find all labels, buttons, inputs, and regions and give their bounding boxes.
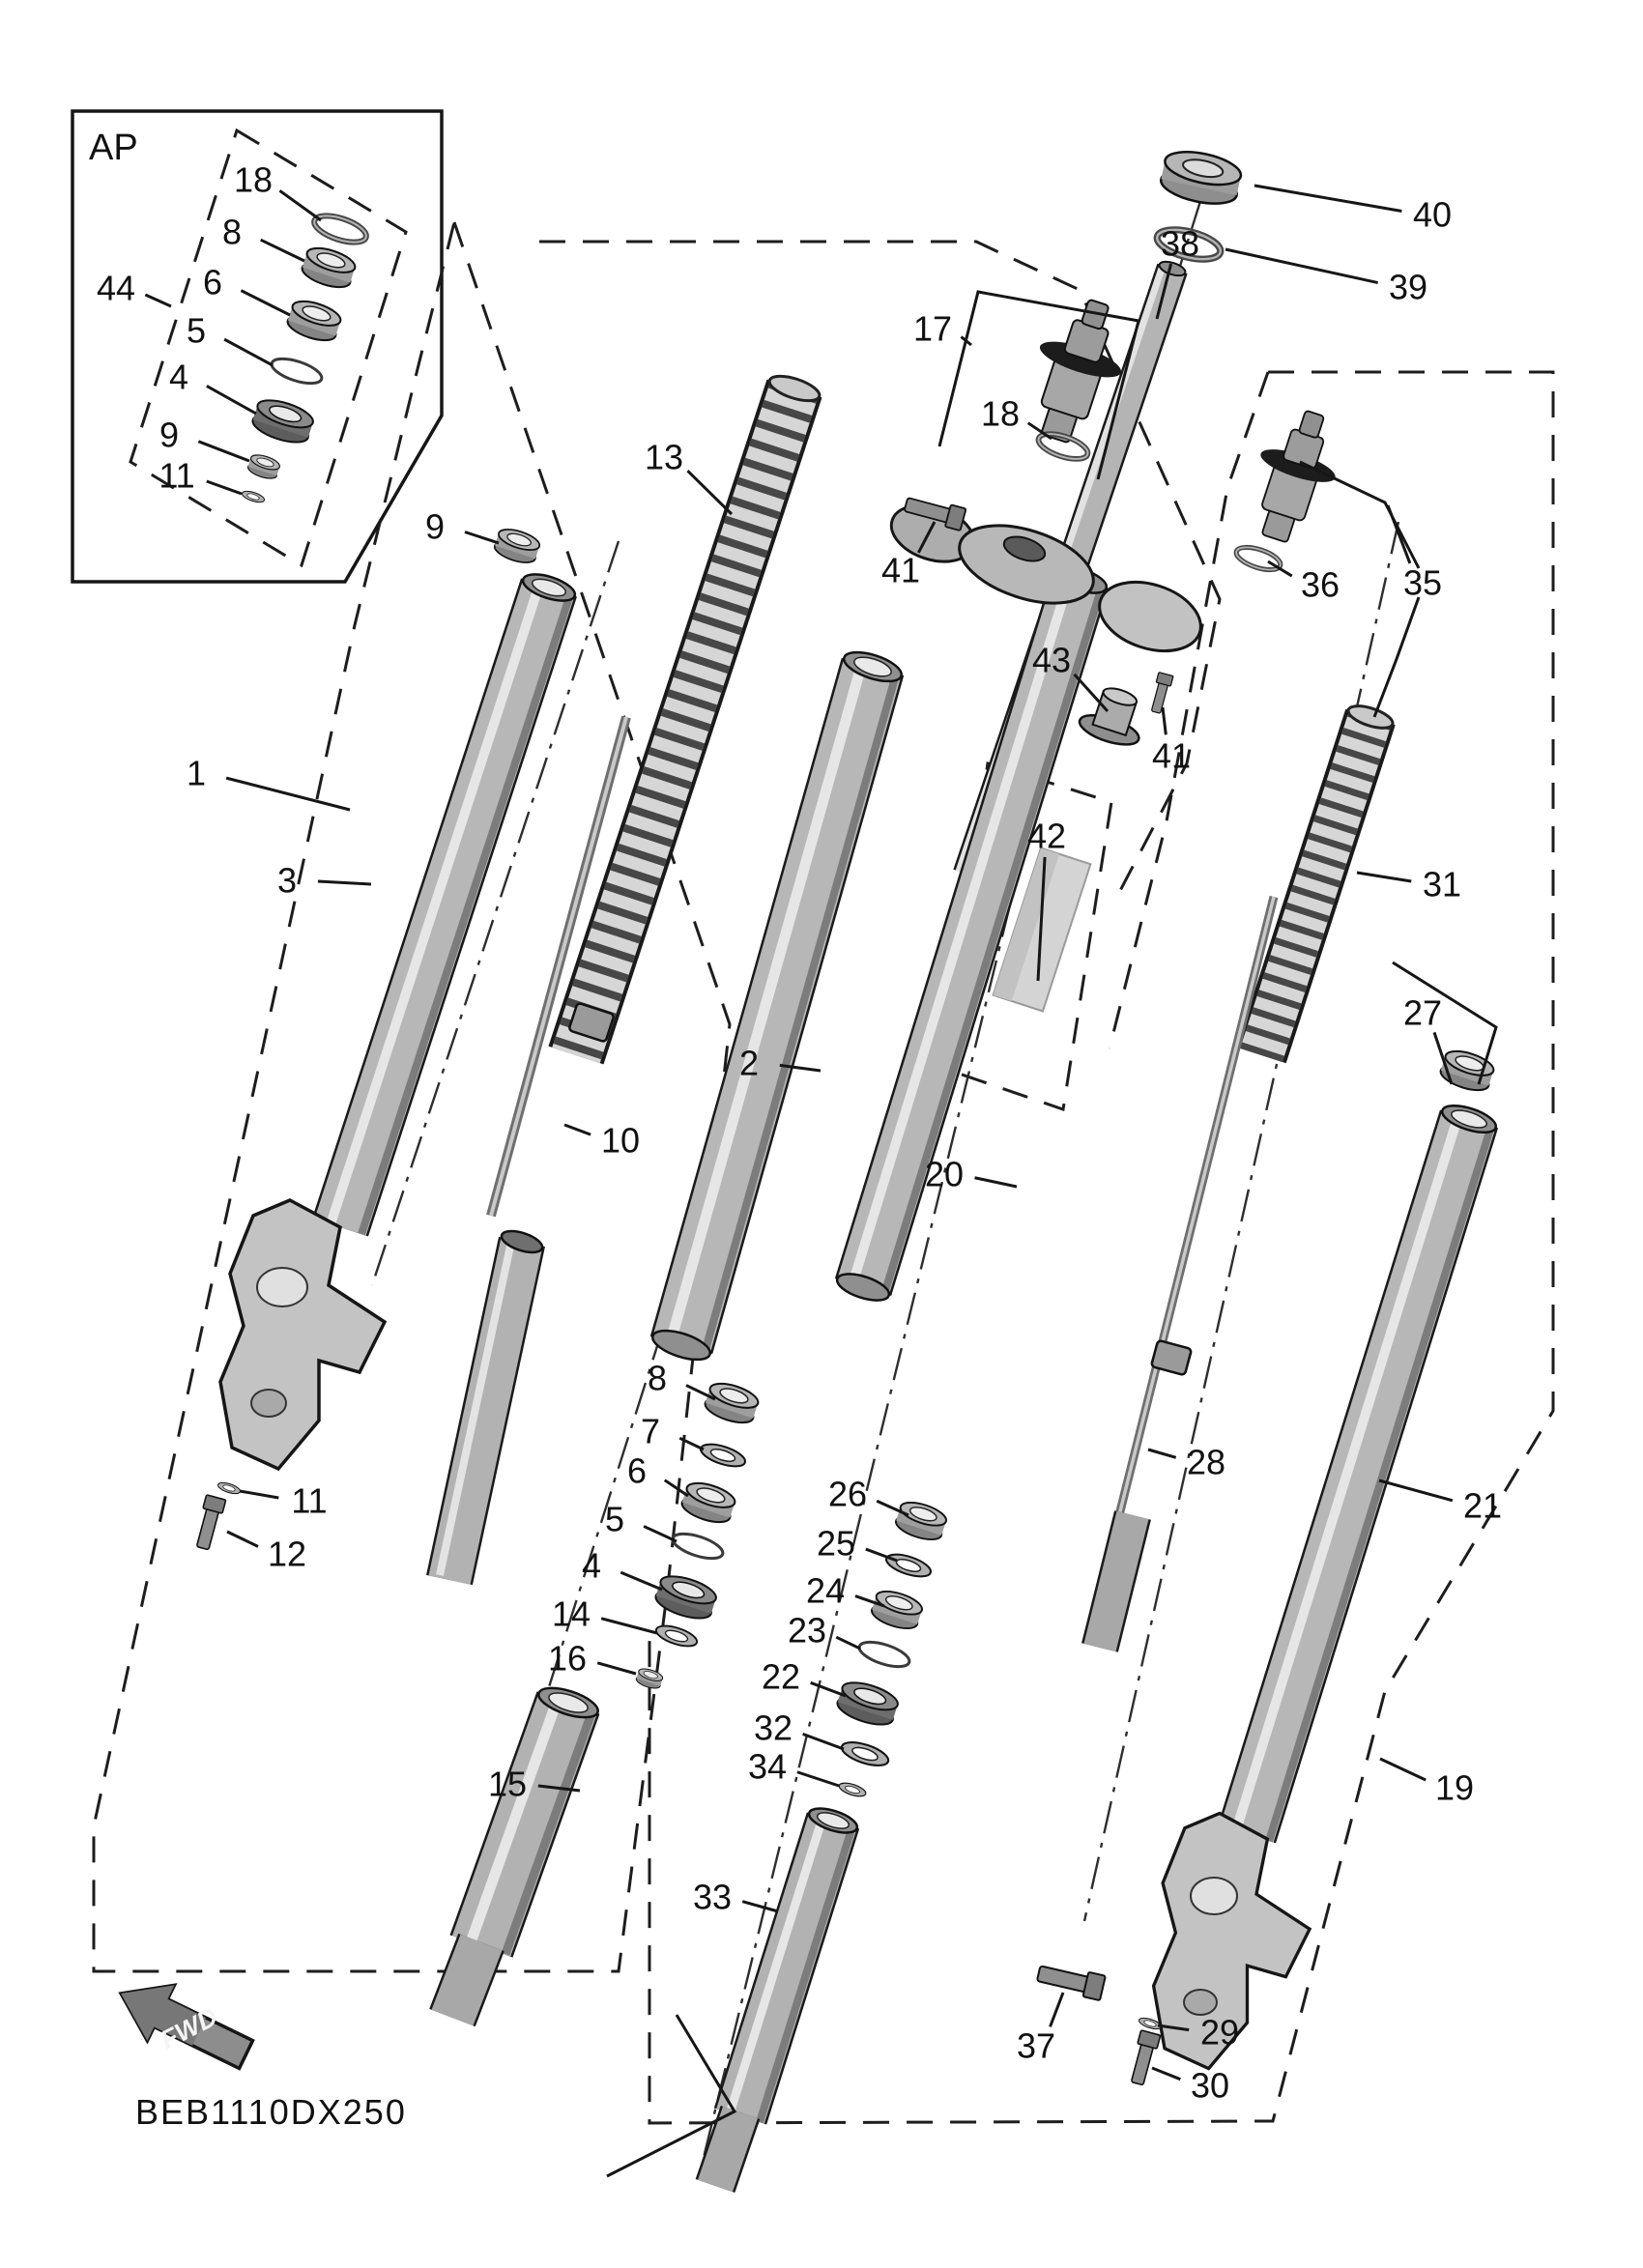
leader-13: [687, 471, 732, 514]
callout-39: 39: [1389, 268, 1427, 307]
ap-seal-4: [249, 395, 316, 448]
leader-4: [207, 386, 256, 414]
right-outer-tube-21: [1236, 1101, 1499, 1841]
callout-13: 13: [645, 438, 683, 477]
leader-10: [564, 1125, 591, 1134]
fork-spring-31: [1261, 702, 1396, 1055]
callout-17: 17: [913, 309, 952, 349]
callout-21: 21: [1463, 1486, 1502, 1526]
damper-rod-28: [1100, 897, 1274, 1648]
ap-washer-11: [241, 489, 266, 504]
callout-20: 20: [925, 1155, 964, 1194]
leader-4: [620, 1572, 662, 1590]
callout-23: 23: [788, 1611, 826, 1651]
leader-23: [836, 1637, 860, 1649]
fwd-arrow: FWD: [107, 1966, 259, 2082]
leader-8: [261, 240, 304, 261]
leader-6: [241, 291, 290, 315]
callout-42: 42: [1027, 817, 1066, 856]
callout-44: 44: [97, 269, 135, 308]
ap-box-title: AP: [89, 128, 138, 168]
axle-pinch-bolt-37: [1036, 1961, 1106, 2000]
callout-2: 2: [739, 1044, 759, 1083]
callout-24: 24: [806, 1571, 845, 1611]
callout-27: 27: [1403, 993, 1442, 1033]
callout-14: 14: [552, 1594, 591, 1634]
leader-11: [207, 481, 242, 494]
leader-33: [742, 1902, 778, 1911]
leader-30: [1152, 2068, 1180, 2080]
leader-34: [797, 1772, 839, 1786]
callout-11: 11: [291, 1481, 327, 1521]
leader-40: [1254, 186, 1401, 211]
callout-29: 29: [1200, 2013, 1239, 2053]
leader-12: [227, 1532, 258, 1546]
stem-cap-43: [1077, 681, 1152, 751]
spacer-9: [492, 526, 541, 567]
callout-10: 10: [601, 1121, 640, 1161]
callout-26: 26: [828, 1475, 867, 1514]
callout-8: 8: [222, 213, 242, 252]
leader-9: [198, 442, 249, 461]
callout-5: 5: [187, 311, 206, 351]
leader-5: [224, 339, 273, 365]
callout-28: 28: [1187, 1443, 1225, 1482]
leader-3: [318, 881, 371, 884]
drain-bolt-30: [1128, 2030, 1161, 2086]
callout-33: 33: [693, 1878, 732, 1917]
ap-oring-18: [311, 211, 369, 247]
leader-35: [1388, 505, 1410, 563]
leader-18: [279, 190, 321, 220]
leader-32: [803, 1734, 844, 1749]
callout-18: 18: [981, 394, 1020, 434]
ap-clip-5: [269, 354, 325, 388]
pinch-bolt-41-lower: [1148, 673, 1173, 714]
washer-11: [216, 1480, 242, 1496]
callout-9: 9: [159, 416, 179, 455]
callout-34: 34: [748, 1747, 787, 1787]
leader-37: [1051, 1993, 1063, 2026]
callout-18: 18: [234, 160, 273, 200]
callout-43: 43: [1032, 641, 1071, 680]
callout-9: 9: [425, 507, 445, 547]
cap-35-bracket-2: [1374, 597, 1419, 717]
callout-19: 19: [1435, 1768, 1474, 1808]
callout-41: 41: [1152, 736, 1191, 776]
callout-37: 37: [1017, 2026, 1055, 2066]
callout-4: 4: [169, 358, 188, 397]
ap-spacer-9: [246, 452, 281, 481]
leader-31: [1357, 873, 1411, 881]
ap-bushing-6: [285, 297, 344, 345]
damper-tube-15: [452, 1682, 601, 2018]
leader-28: [1148, 1450, 1176, 1457]
callout-32: 32: [754, 1708, 793, 1748]
leader-11: [240, 1491, 278, 1498]
callout-41: 41: [881, 551, 920, 590]
parts-diagram-page: FWD AP BEB1110DX250 18864454911913131024…: [0, 0, 1643, 2268]
leader-19: [1380, 1759, 1426, 1780]
callout-4: 4: [582, 1546, 601, 1586]
callout-1: 1: [187, 754, 206, 793]
cap-oring-36: [1233, 543, 1283, 574]
callout-31: 31: [1423, 865, 1461, 904]
callout-15: 15: [488, 1765, 527, 1804]
fork-cap-35: [1237, 401, 1352, 551]
callout-5: 5: [605, 1500, 624, 1539]
leader-39: [1225, 249, 1378, 283]
leader-41: [1163, 707, 1166, 734]
callout-6: 6: [203, 263, 222, 302]
callout-8: 8: [648, 1359, 667, 1398]
ap-bushing-8: [300, 244, 359, 292]
callout-35: 35: [1403, 563, 1442, 603]
drain-bolt-12: [193, 1495, 226, 1551]
left-axle-bracket: [220, 1200, 385, 1469]
callout-40: 40: [1413, 195, 1452, 235]
callout-38: 38: [1161, 224, 1199, 264]
leader-44: [145, 295, 171, 306]
leader-5: [644, 1526, 677, 1541]
leader-1: [226, 778, 350, 810]
leader-6: [665, 1480, 688, 1496]
left-outer-tube-3: [331, 569, 578, 1234]
callout-11: 11: [159, 456, 194, 496]
leader-14: [601, 1619, 657, 1633]
callout-7: 7: [641, 1412, 660, 1451]
exploded-diagram-canvas: FWD AP BEB1110DX250 18864454911913131024…: [0, 0, 1643, 2268]
callout-12: 12: [268, 1535, 306, 1574]
part-code: BEB1110DX250: [135, 2092, 407, 2132]
callout-6: 6: [627, 1451, 647, 1491]
callout-16: 16: [548, 1639, 587, 1679]
leader-20: [975, 1178, 1017, 1187]
callout-22: 22: [762, 1657, 800, 1697]
callout-3: 3: [277, 861, 297, 901]
callout-30: 30: [1191, 2066, 1229, 2106]
leader-9: [465, 531, 499, 543]
callout-36: 36: [1301, 565, 1340, 605]
callout-25: 25: [817, 1524, 855, 1564]
inner-tube-33: [715, 1803, 860, 2186]
steering-nut-40: [1158, 146, 1244, 210]
leader-16: [597, 1663, 636, 1674]
leader-21: [1379, 1480, 1453, 1501]
